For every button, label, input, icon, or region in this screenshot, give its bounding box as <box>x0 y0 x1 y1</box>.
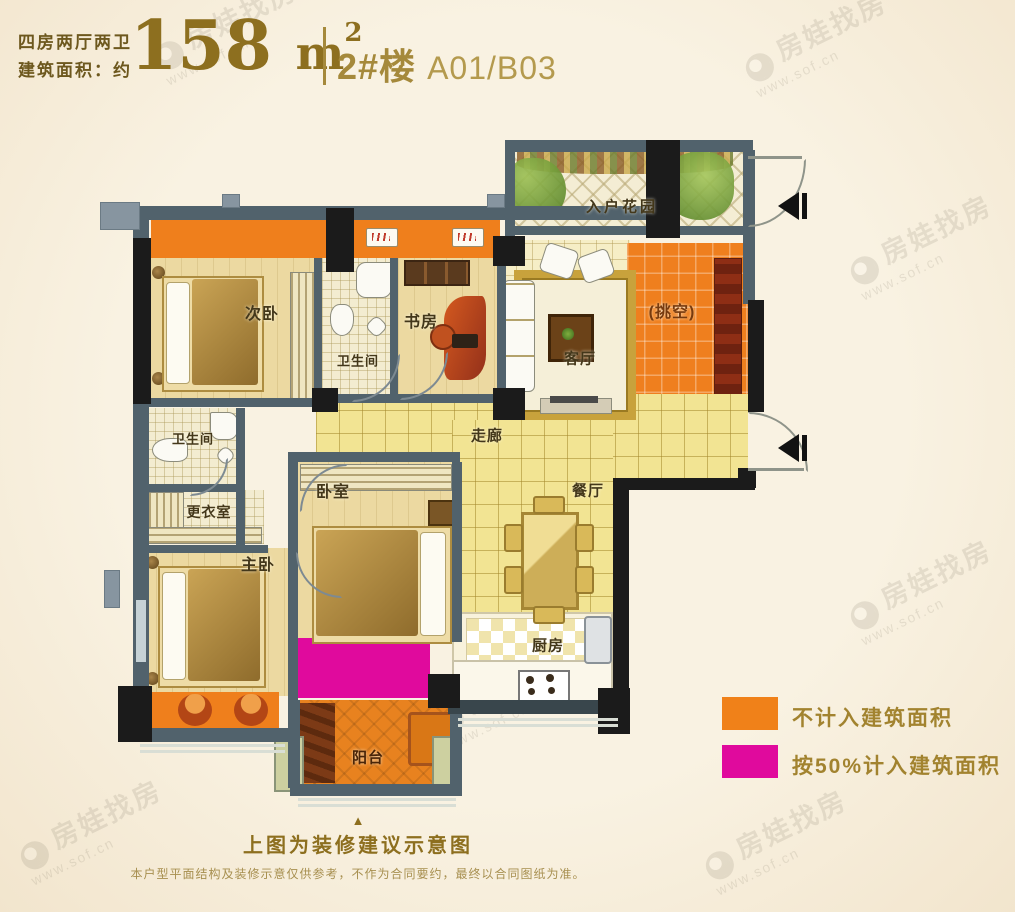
bed-blanket <box>192 279 258 385</box>
void-decor-band <box>714 258 742 405</box>
wall-column <box>748 300 764 412</box>
dining-chair <box>533 606 565 624</box>
wall-tab <box>104 570 120 608</box>
dining-chair <box>575 566 594 594</box>
wall <box>288 460 298 700</box>
wall-column <box>326 208 354 272</box>
wall <box>288 700 300 788</box>
dining-chair <box>504 524 523 552</box>
wall-column <box>493 236 525 266</box>
wall-column <box>428 674 460 708</box>
room-label-master-bedroom: 主卧 <box>241 551 275 575</box>
legend-label-magenta: 按50%计入建筑面积 <box>792 750 1001 780</box>
stove <box>518 670 570 702</box>
wall-tab <box>222 194 240 208</box>
stove-burner <box>528 688 535 695</box>
room-label-balcony: 阳台 <box>352 747 384 768</box>
wall <box>505 226 755 235</box>
bed-blanket <box>188 569 260 681</box>
wall-tab <box>487 194 505 208</box>
pointer-up-icon: ▲ <box>115 814 601 827</box>
window-sill <box>298 804 456 807</box>
room-label-entry-garden: 入户花园 <box>586 196 658 217</box>
room-label-dressing-room: 更衣室 <box>187 502 232 522</box>
legend-label-orange: 不计入建筑面积 <box>792 702 953 732</box>
room-label-void: (挑空) <box>649 298 696 322</box>
stove-burner <box>526 676 534 684</box>
table-plant <box>562 328 574 340</box>
wall <box>133 206 660 220</box>
entry-arrow-icon <box>778 192 807 220</box>
ac-unit-icon <box>452 228 484 247</box>
legend-swatch-orange <box>722 697 778 730</box>
dining-table <box>521 512 579 610</box>
bed-pillow <box>166 282 190 384</box>
wall-column <box>133 238 151 404</box>
bed-pillow <box>420 532 446 636</box>
room-label-living-room: 客厅 <box>564 348 596 369</box>
wall-column <box>613 490 629 702</box>
wall <box>288 452 460 462</box>
wall <box>133 728 291 742</box>
wall <box>505 150 515 236</box>
monitor <box>452 334 478 348</box>
room-label-bathroom-top: 卫生间 <box>337 351 379 370</box>
room-label-study: 书房 <box>404 308 438 332</box>
room-label-dining-room: 餐厅 <box>572 480 604 501</box>
footer-caption: ▲ 上图为装修建议示意图 本户型平面结构及装修示意仅供参考，不作为合同要约，最终… <box>115 814 601 882</box>
wall <box>290 784 462 796</box>
bookshelf <box>404 260 470 286</box>
tv <box>550 396 598 403</box>
stove-burner <box>546 674 554 682</box>
wall-column <box>646 140 680 238</box>
footer-title: 上图为装修建议示意图 <box>115 829 601 858</box>
wall <box>505 140 753 152</box>
window-sill <box>298 798 456 801</box>
dining-chair <box>575 524 594 552</box>
window-sill <box>458 718 618 721</box>
window-sill <box>458 724 618 727</box>
dining-chair <box>504 566 523 594</box>
kitchen-sink <box>584 616 612 664</box>
legend-swatch-magenta <box>722 745 778 778</box>
wall-column <box>598 688 630 734</box>
ac-unit-icon <box>366 228 398 247</box>
wall <box>133 398 318 407</box>
wall-column <box>118 686 152 742</box>
balcony-plant-band <box>299 703 335 783</box>
stove-burner <box>548 687 555 694</box>
bay-chair <box>178 694 212 726</box>
wall <box>452 462 462 642</box>
wall <box>314 258 322 398</box>
shower <box>210 412 238 440</box>
window-sill <box>140 744 285 747</box>
shower <box>356 262 392 298</box>
window-sill <box>140 750 285 753</box>
footer-disclaimer: 本户型平面结构及装修示意仅供参考，不作为合同要约，最终以合同图纸为准。 <box>115 865 601 882</box>
bay-chair <box>234 694 268 726</box>
room-label-bedroom: 卧室 <box>316 478 350 502</box>
wall-column <box>493 388 525 420</box>
wall-column <box>312 388 338 412</box>
bed-pillow <box>162 572 186 680</box>
room-label-corridor: 走廊 <box>471 425 503 446</box>
entry-arrow-icon <box>778 434 807 462</box>
wall <box>236 408 245 548</box>
wall <box>743 228 755 304</box>
wall-step <box>613 478 755 490</box>
room-label-second-bedroom: 次卧 <box>245 300 279 324</box>
half-area-zone <box>296 638 430 698</box>
bay-strip-left <box>151 218 327 258</box>
sofa <box>503 280 535 392</box>
dining-chair <box>533 496 565 514</box>
room-label-bathroom-left: 卫生间 <box>172 429 214 448</box>
window <box>136 600 146 662</box>
room-label-kitchen: 厨房 <box>532 635 564 656</box>
wall-tab <box>100 202 140 230</box>
toilet <box>330 304 354 336</box>
